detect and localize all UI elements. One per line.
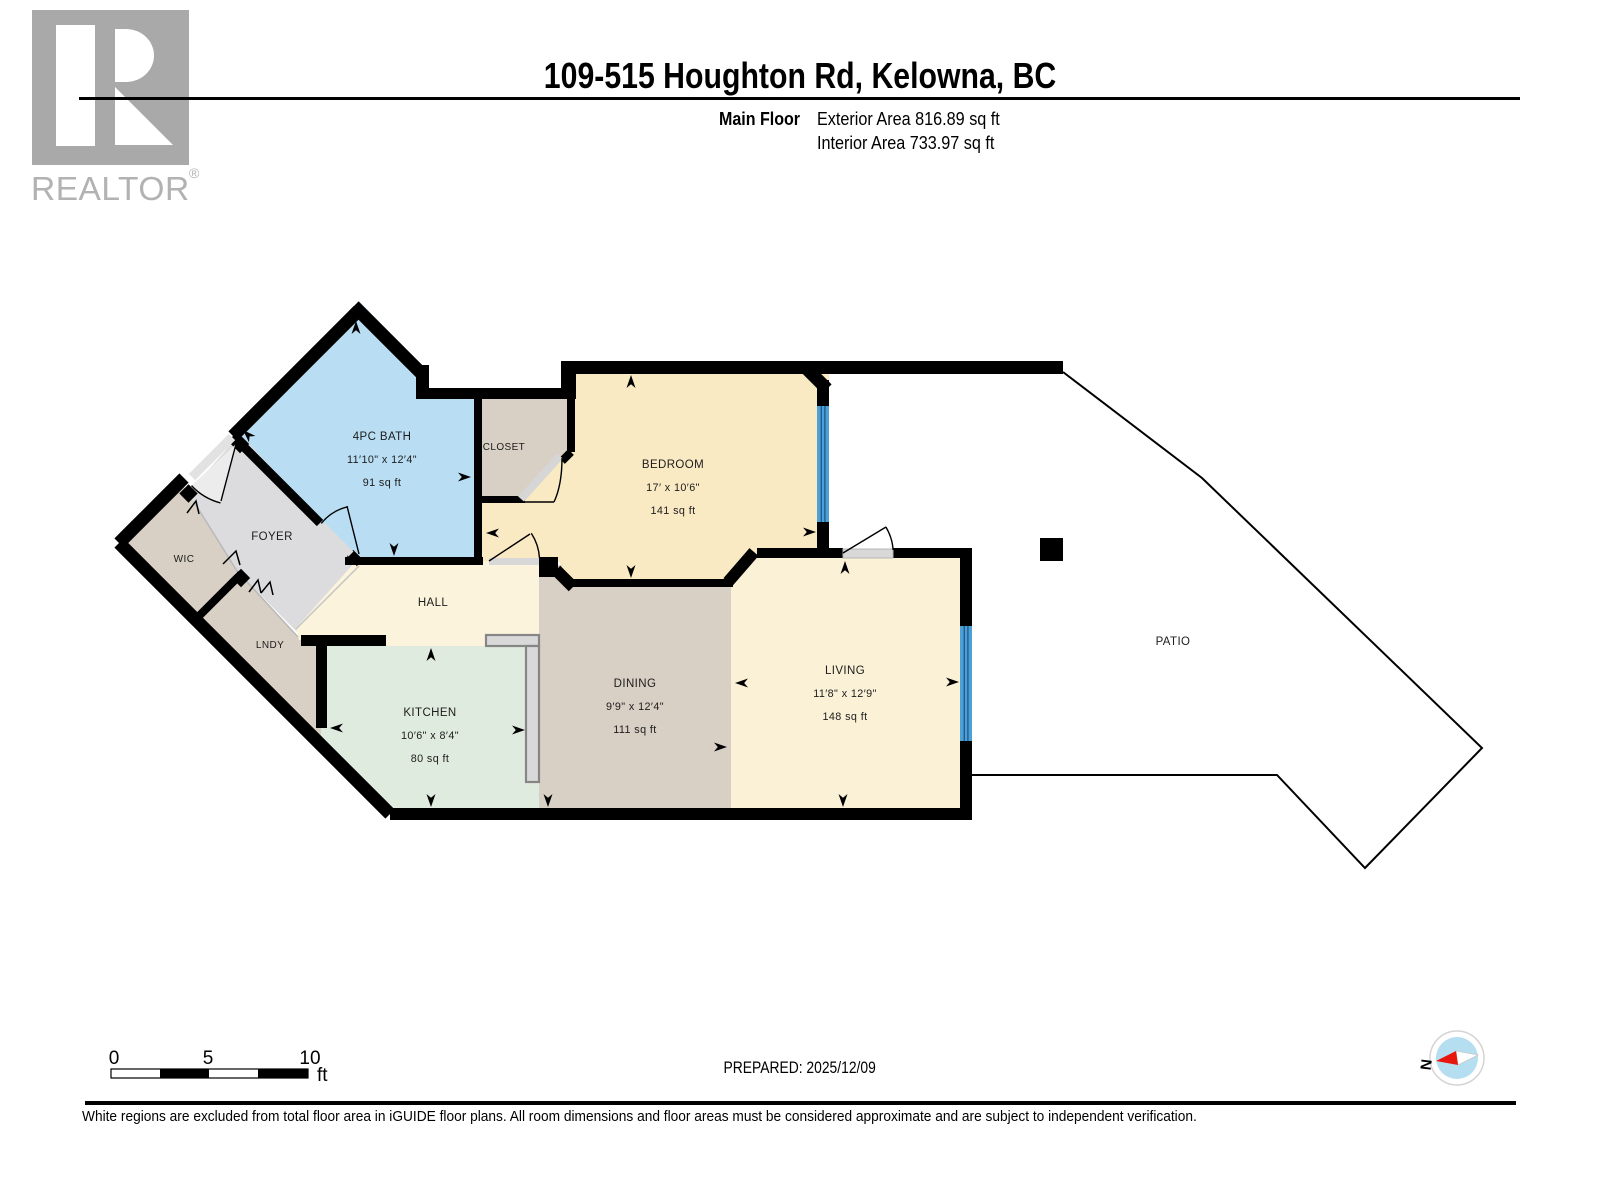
svg-text:CLOSET: CLOSET xyxy=(483,442,525,453)
svg-text:FOYER: FOYER xyxy=(251,531,293,543)
svg-text:HALL: HALL xyxy=(418,597,449,609)
svg-text:DINING9′9" x 12′4"111 sq ft: DINING9′9" x 12′4"111 sq ft xyxy=(606,678,664,736)
svg-text:WIC: WIC xyxy=(174,554,195,565)
svg-text:LNDY: LNDY xyxy=(256,640,284,651)
svg-text:PATIO: PATIO xyxy=(1156,636,1191,648)
svg-text:BEDROOM17′ x 10′6"141 sq ft: BEDROOM17′ x 10′6"141 sq ft xyxy=(642,459,704,517)
